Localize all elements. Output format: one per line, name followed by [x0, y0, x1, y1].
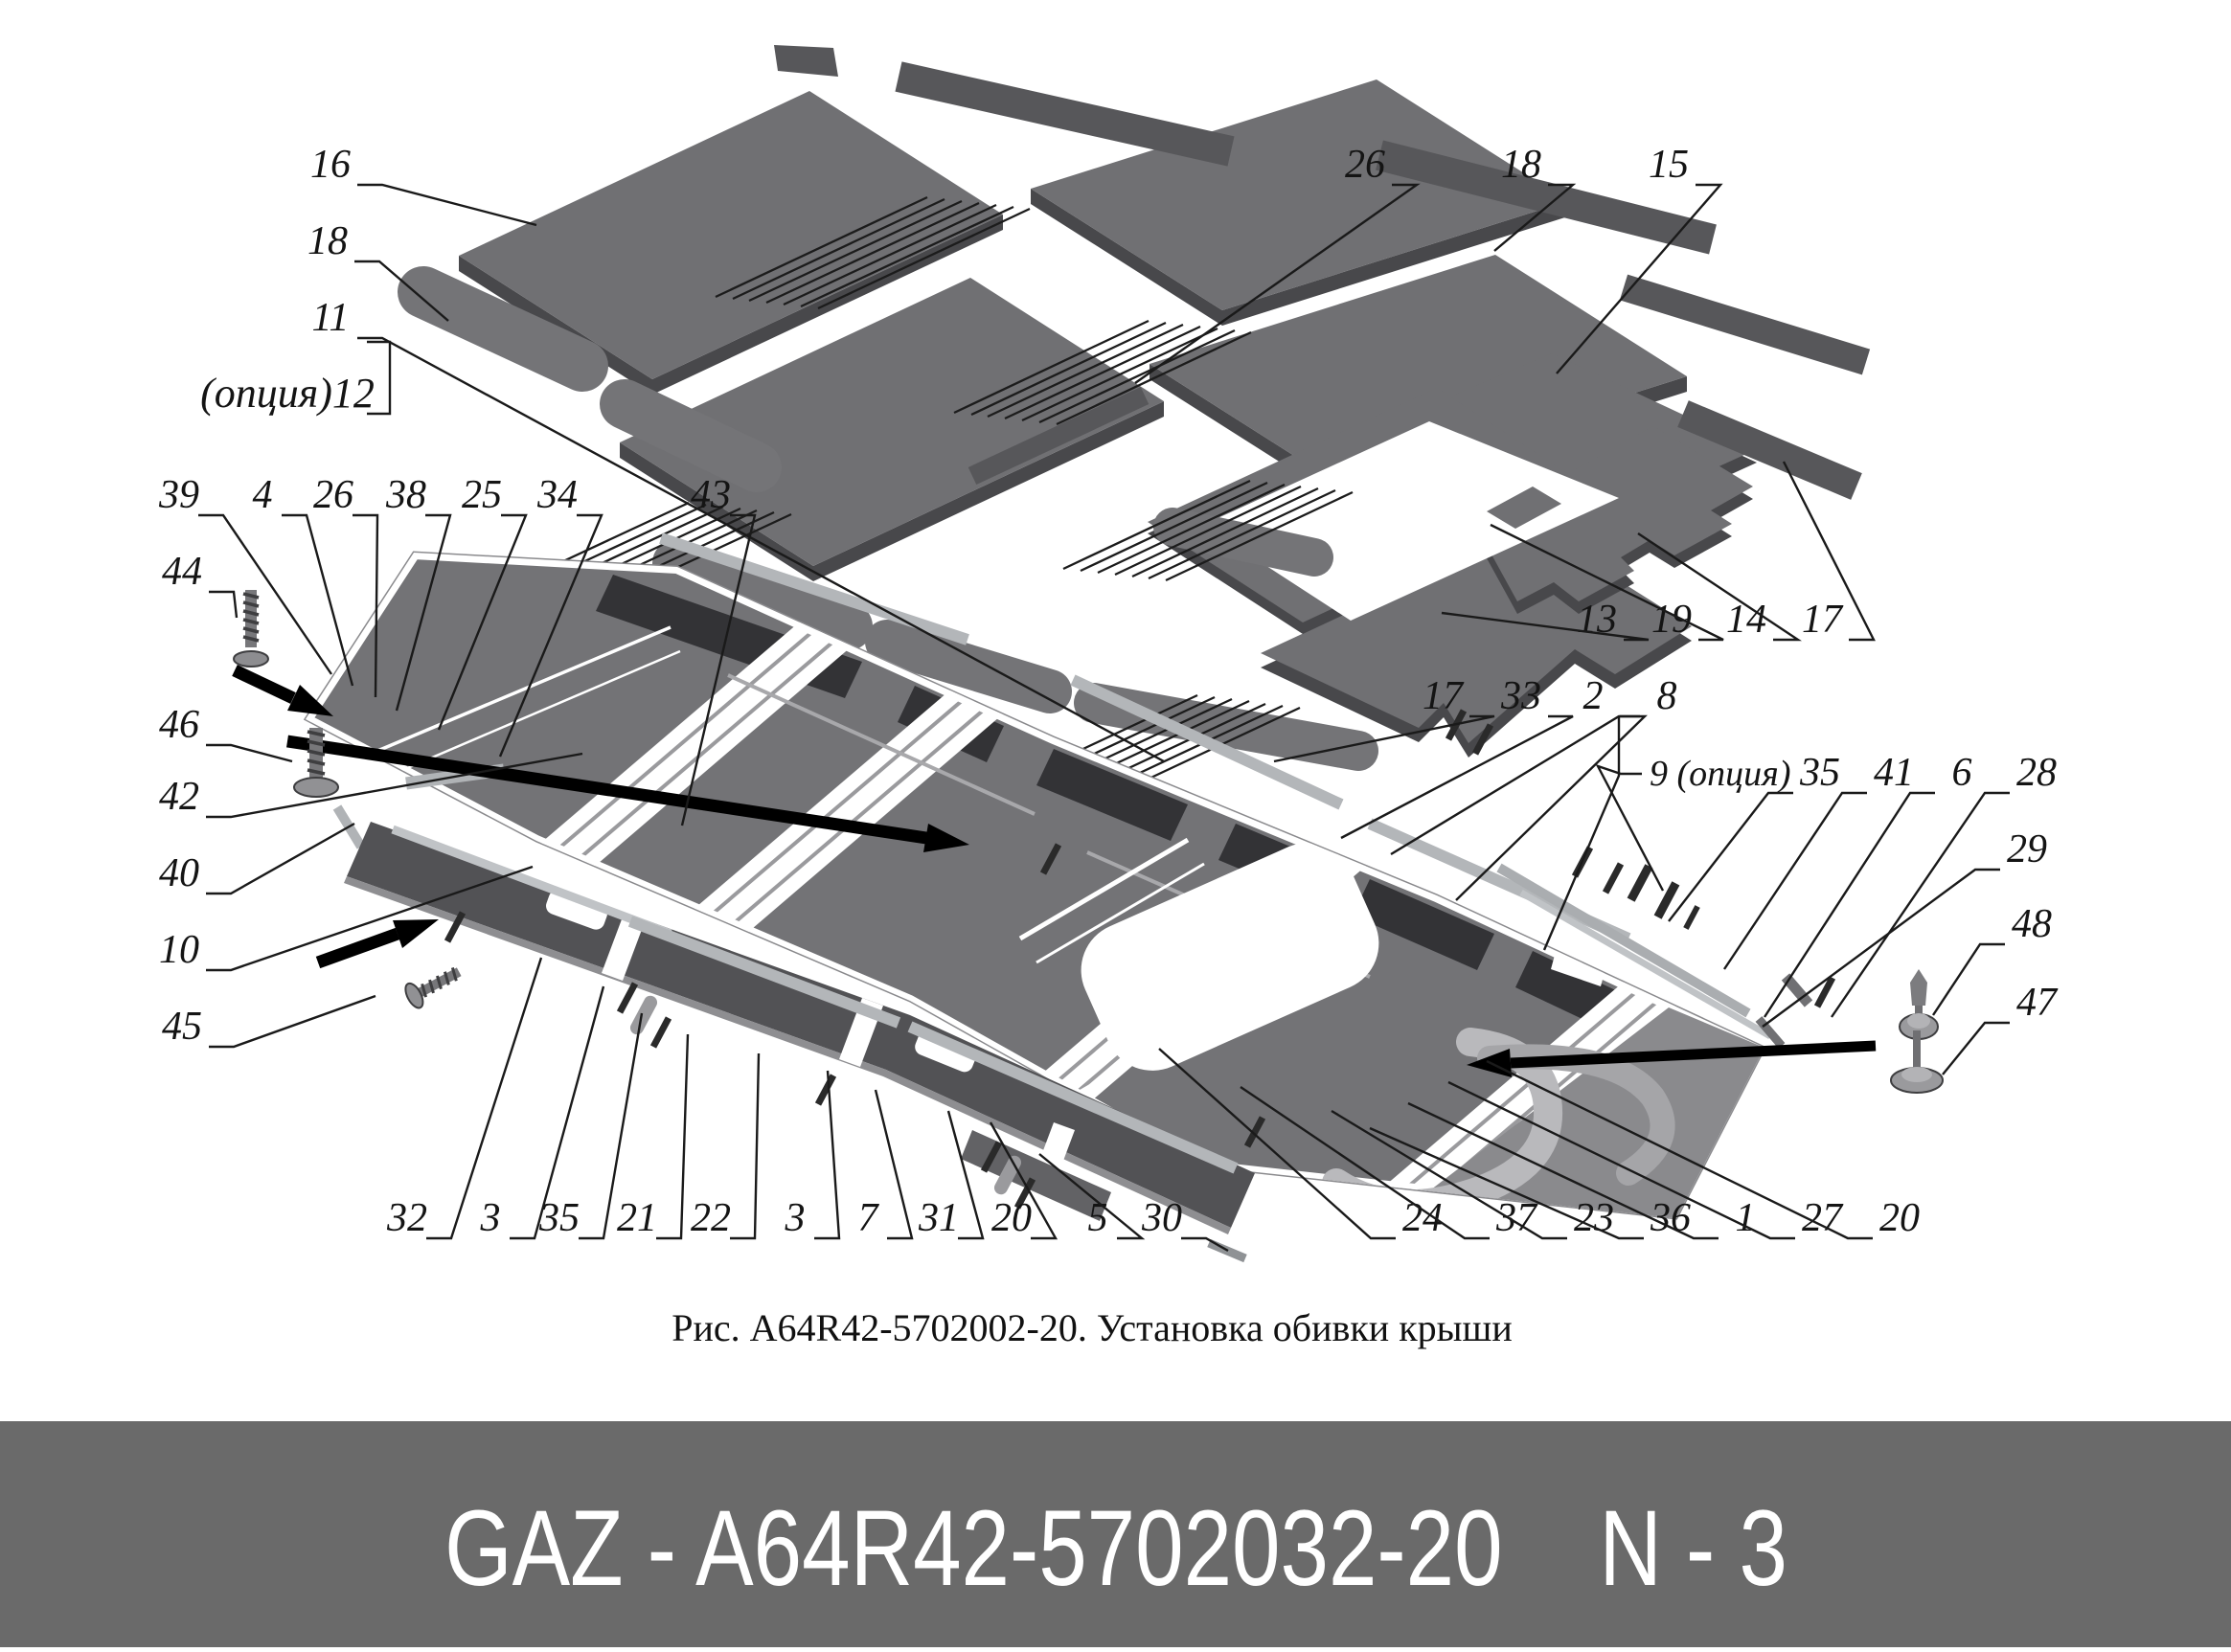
svg-text:31: 31: [918, 1196, 959, 1240]
svg-text:(опция)12: (опция)12: [200, 370, 375, 417]
svg-text:2: 2: [1583, 674, 1604, 718]
svg-text:4: 4: [253, 473, 273, 517]
svg-text:35: 35: [538, 1196, 580, 1240]
svg-text:30: 30: [1141, 1196, 1182, 1240]
svg-text:15: 15: [1649, 143, 1689, 187]
svg-text:9 (опция): 9 (опция): [1650, 754, 1790, 794]
svg-text:34: 34: [536, 473, 578, 517]
svg-text:10: 10: [159, 928, 199, 972]
svg-text:1: 1: [1736, 1196, 1756, 1240]
svg-text:48: 48: [2012, 902, 2052, 946]
svg-text:3: 3: [480, 1196, 501, 1240]
svg-text:28: 28: [2016, 751, 2057, 795]
svg-text:25: 25: [462, 473, 502, 517]
svg-text:33: 33: [1500, 674, 1541, 718]
svg-text:39: 39: [158, 473, 199, 517]
svg-text:6: 6: [1952, 751, 1972, 795]
svg-text:38: 38: [385, 473, 426, 517]
svg-text:29: 29: [2007, 827, 2047, 871]
svg-text:21: 21: [617, 1196, 657, 1240]
svg-text:43: 43: [691, 473, 731, 517]
svg-text:Рис. А64R42-5702002-20. Устано: Рис. А64R42-5702002-20. Установка обивки…: [672, 1306, 1512, 1349]
svg-text:19: 19: [1651, 598, 1692, 642]
svg-text:32: 32: [386, 1196, 427, 1240]
svg-text:42: 42: [159, 775, 199, 819]
svg-text:47: 47: [2016, 981, 2059, 1025]
svg-text:18: 18: [1501, 143, 1541, 187]
svg-text:26: 26: [1345, 143, 1385, 187]
svg-text:7: 7: [858, 1196, 880, 1240]
svg-text:37: 37: [1495, 1196, 1538, 1240]
svg-text:20: 20: [1879, 1196, 1920, 1240]
svg-text:17: 17: [1423, 674, 1465, 718]
svg-text:22: 22: [691, 1196, 731, 1240]
svg-text:18: 18: [307, 219, 348, 263]
svg-text:20: 20: [991, 1196, 1032, 1240]
svg-text:45: 45: [162, 1005, 202, 1049]
svg-text:35: 35: [1799, 751, 1840, 795]
svg-text:11: 11: [312, 296, 350, 340]
svg-text:44: 44: [162, 550, 202, 594]
svg-text:17: 17: [1802, 598, 1844, 642]
svg-text:8: 8: [1657, 674, 1677, 718]
svg-text:40: 40: [159, 851, 199, 895]
svg-text:41: 41: [1874, 751, 1914, 795]
svg-text:46: 46: [159, 703, 199, 747]
svg-text:26: 26: [313, 473, 353, 517]
svg-text:16: 16: [310, 143, 351, 187]
svg-text:3: 3: [785, 1196, 806, 1240]
